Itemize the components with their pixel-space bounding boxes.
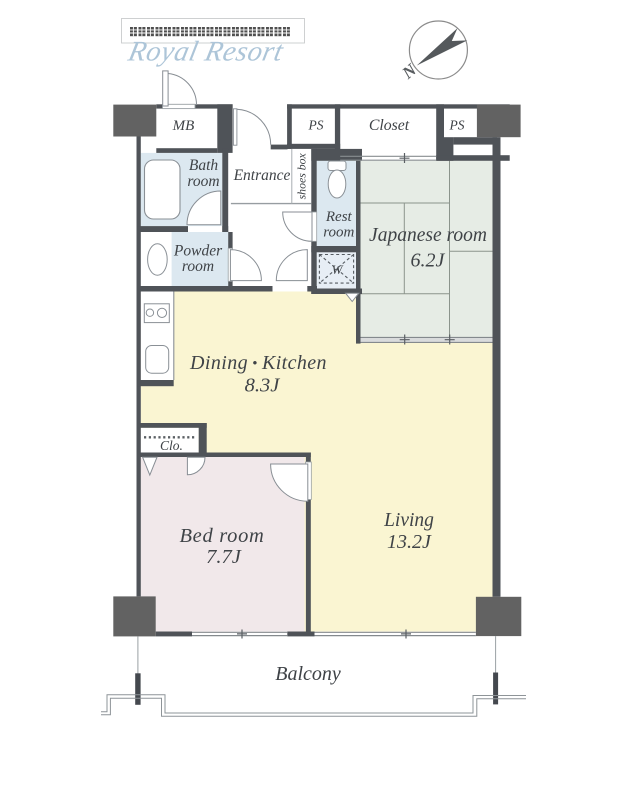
svg-text:Royal Resort: Royal Resort: [125, 36, 287, 68]
svg-text:W: W: [332, 262, 344, 277]
svg-text:PS: PS: [449, 118, 465, 133]
svg-text:PS: PS: [308, 118, 324, 133]
svg-text:Balcony: Balcony: [275, 663, 341, 685]
svg-text:shoes box: shoes box: [294, 152, 308, 199]
svg-text:Living: Living: [383, 510, 434, 531]
svg-text:6.2J: 6.2J: [411, 250, 446, 272]
svg-text:Japanese room: Japanese room: [369, 225, 487, 246]
svg-text:room: room: [182, 258, 214, 275]
svg-text:13.2J: 13.2J: [387, 531, 432, 553]
svg-text:Powder: Powder: [173, 243, 223, 260]
svg-text:N: N: [398, 60, 421, 84]
svg-text:8.3J: 8.3J: [245, 375, 281, 397]
svg-text:Closet: Closet: [369, 117, 410, 134]
svg-text:room: room: [323, 225, 354, 241]
svg-text:Rest: Rest: [325, 209, 353, 225]
svg-text:7.7J: 7.7J: [206, 546, 242, 568]
svg-text:MB: MB: [172, 118, 195, 134]
svg-text:Dining • Kitchen: Dining • Kitchen: [189, 352, 327, 374]
svg-text:Entrance: Entrance: [233, 167, 291, 184]
svg-text:Bath: Bath: [189, 157, 219, 174]
svg-text:Bed room: Bed room: [179, 525, 264, 547]
svg-text:room: room: [187, 173, 219, 190]
svg-text:Clo.: Clo.: [160, 438, 183, 453]
